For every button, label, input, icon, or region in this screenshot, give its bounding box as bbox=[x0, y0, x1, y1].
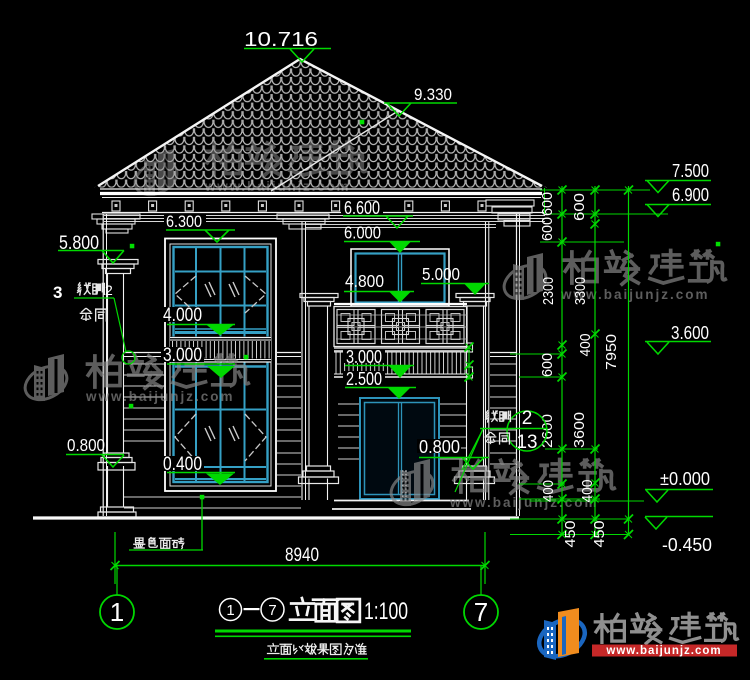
svg-text:600: 600 bbox=[540, 353, 556, 377]
svg-text:±0.000: ±0.000 bbox=[660, 468, 710, 489]
svg-text:600: 600 bbox=[540, 217, 556, 241]
svg-text:-0.450: -0.450 bbox=[662, 534, 712, 555]
svg-text:3600: 3600 bbox=[572, 412, 588, 448]
svg-text:6.600: 6.600 bbox=[344, 198, 380, 218]
svg-text:7950: 7950 bbox=[604, 334, 620, 370]
svg-text:1:100: 1:100 bbox=[364, 598, 408, 625]
svg-text:0.800: 0.800 bbox=[419, 437, 460, 457]
svg-text:2: 2 bbox=[522, 408, 533, 429]
svg-text:www.baijunjz.com: www.baijunjz.com bbox=[449, 495, 599, 510]
svg-text:400: 400 bbox=[541, 480, 557, 502]
svg-text:7.500: 7.500 bbox=[672, 160, 709, 181]
svg-text:10.716: 10.716 bbox=[244, 29, 318, 51]
svg-text:3300: 3300 bbox=[573, 277, 589, 305]
svg-text:www.baijunjz.com: www.baijunjz.com bbox=[85, 389, 235, 404]
svg-text:450: 450 bbox=[592, 521, 608, 548]
svg-text:www.baijunjz.com: www.baijunjz.com bbox=[605, 645, 721, 657]
svg-text:600: 600 bbox=[540, 192, 556, 216]
svg-text:6.000: 6.000 bbox=[344, 223, 381, 243]
svg-text:7: 7 bbox=[474, 597, 488, 627]
svg-text:8940: 8940 bbox=[285, 545, 319, 566]
svg-text:2300: 2300 bbox=[541, 277, 557, 305]
svg-text:400: 400 bbox=[578, 334, 594, 357]
svg-text:5.000: 5.000 bbox=[422, 264, 460, 284]
svg-text:9.330: 9.330 bbox=[414, 85, 452, 104]
svg-text:450: 450 bbox=[563, 521, 579, 548]
svg-text:7: 7 bbox=[268, 602, 276, 619]
svg-text:1: 1 bbox=[110, 597, 124, 627]
svg-text:3.600: 3.600 bbox=[671, 322, 709, 343]
svg-text:4.800: 4.800 bbox=[345, 271, 384, 291]
svg-text:600: 600 bbox=[572, 193, 588, 221]
svg-text:3.000: 3.000 bbox=[163, 345, 202, 366]
svg-text:3: 3 bbox=[53, 283, 62, 302]
svg-text:0.800: 0.800 bbox=[67, 435, 105, 455]
svg-text:13: 13 bbox=[517, 432, 538, 453]
svg-text:2.500: 2.500 bbox=[346, 369, 382, 389]
svg-text:2: 2 bbox=[105, 282, 113, 298]
svg-text:6.300: 6.300 bbox=[166, 213, 202, 231]
svg-text:4.000: 4.000 bbox=[163, 305, 202, 326]
svg-text:400: 400 bbox=[580, 480, 596, 503]
svg-text:3.000: 3.000 bbox=[346, 347, 382, 367]
svg-text:1: 1 bbox=[226, 602, 234, 619]
svg-text:6.900: 6.900 bbox=[672, 184, 709, 205]
